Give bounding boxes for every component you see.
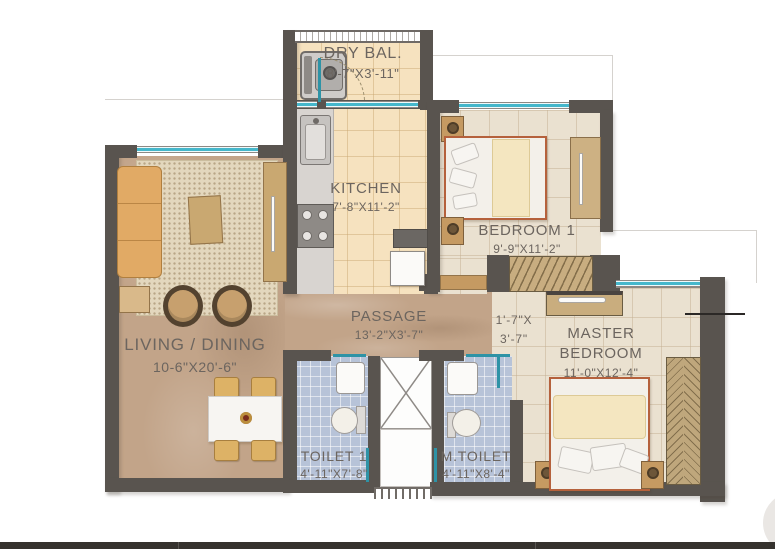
dresser <box>546 291 623 316</box>
dining-chair <box>251 440 276 461</box>
room-dim: 4'-11"X7'-8" <box>300 468 368 482</box>
floor-plan: DRY BAL. 8'-7"X3'-11" KITCHEN 7'-8"X11'-… <box>0 0 775 549</box>
bed-blanket <box>492 139 530 217</box>
room-dim: 4'-11"X8'-4" <box>441 468 512 482</box>
room-label-toilet1: TOILET 1 4'-11"X7'-8" <box>300 448 368 482</box>
room-name: KITCHEN <box>330 180 401 197</box>
wall-wardrobe-left-post <box>487 255 509 292</box>
side-table <box>119 286 150 313</box>
nightstand <box>441 217 464 245</box>
coffee-table <box>188 195 223 245</box>
wall-kitchen-bedroom1 <box>427 100 440 292</box>
room-name: TOILET 1 <box>300 448 368 464</box>
armchair <box>212 285 252 327</box>
toilet1-door-leaf-top <box>333 354 366 357</box>
burner <box>302 210 312 220</box>
wall-living-bottom <box>105 478 289 492</box>
dry-balcony-door-leaf <box>318 58 321 102</box>
progress-bar[interactable] <box>0 542 775 549</box>
entrance-lobby <box>380 429 432 487</box>
room-label-bedroom1: BEDROOM 1 9'-9"X11'-2" <box>478 222 575 257</box>
room-label-master-toilet: M.TOILET 4'-11"X8'-4" <box>441 448 512 482</box>
master-toilet-wc <box>452 409 481 437</box>
wardrobe-bedroom1 <box>570 137 601 219</box>
room-name-line2: BEDROOM <box>559 345 642 362</box>
wall-toilet1-left <box>283 350 297 492</box>
kitchen-sink <box>300 115 331 165</box>
wardrobe-chevron-right <box>684 358 700 484</box>
tv-unit <box>263 162 287 282</box>
nightstand-lamp <box>647 467 659 479</box>
burner <box>318 231 328 241</box>
room-label-master-bedroom: MASTER BEDROOM 11'-0"X12'-4" <box>559 325 642 380</box>
bedroom1-door-panel <box>440 275 487 290</box>
room-name: DRY BAL. <box>324 45 403 63</box>
room-dim: 10-6"X20'-6" <box>124 359 265 375</box>
burner <box>302 231 312 241</box>
sink-bowl <box>305 124 326 160</box>
room-dim: 8'-7"X3'-11" <box>324 67 403 82</box>
room-name: M.TOILET <box>441 448 512 464</box>
toilet1-wc <box>331 407 358 434</box>
room-dim: 7'-8"X11'-2" <box>330 201 401 215</box>
wall-wardrobe-right-post <box>593 255 602 292</box>
wall-master-right <box>700 277 725 502</box>
duct-shaft <box>380 357 432 429</box>
armchair <box>163 285 203 327</box>
pillow <box>452 192 478 210</box>
dresser-object <box>558 297 606 303</box>
room-label-mini-passage: 1'-7"X 3'-7" <box>496 314 533 347</box>
pillow <box>450 142 480 166</box>
nightstand-lamp <box>447 122 459 134</box>
boundary-line-east-v <box>756 230 757 283</box>
wall-master-toilet-top <box>419 350 464 361</box>
nightstand-lamp <box>447 223 459 235</box>
wall-living-top-left <box>105 145 137 158</box>
room-dim: 9'-9"X11'-2" <box>478 243 575 257</box>
fridge <box>390 251 425 286</box>
window-master-bedroom <box>616 280 702 288</box>
room-label-kitchen: KITCHEN 7'-8"X11'-2" <box>330 180 401 215</box>
window-bedroom1 <box>459 102 569 109</box>
kitchen-platform <box>393 229 428 248</box>
wall-shaft-left <box>368 356 380 490</box>
table-centerpiece <box>240 412 252 424</box>
entrance-threshold <box>374 487 432 499</box>
dining-chair <box>214 377 239 398</box>
progress-bar-divider <box>178 542 179 549</box>
room-name-line1: MASTER <box>559 325 642 342</box>
boundary-line-above-bedroom1 <box>433 55 613 56</box>
mini-passage-door-leaf <box>497 356 500 388</box>
room-label-living-dining: LIVING / DINING 10-6"X20'-6" <box>124 335 265 375</box>
progress-bar-divider <box>535 542 536 549</box>
master-toilet-sink <box>447 362 478 395</box>
bed-bedroom1 <box>444 136 547 220</box>
dining-table <box>208 396 282 442</box>
wall-bedroom1-right <box>600 110 613 232</box>
wall-master-toilet-right <box>510 400 523 490</box>
room-dim: 13'-2"X3'-7" <box>351 329 427 343</box>
wall-dry-balcony-right <box>420 30 433 110</box>
wardrobe-chevron-left <box>667 358 683 484</box>
toilet1-sink <box>336 362 365 394</box>
room-dim-line1: 1'-7"X <box>496 314 533 328</box>
window-living <box>137 146 258 153</box>
room-name: BEDROOM 1 <box>478 222 575 239</box>
wardrobe-hatched <box>509 256 593 292</box>
stove <box>297 204 334 248</box>
washer-control-panel <box>304 56 312 94</box>
boundary-line-bedroom1-right <box>612 55 613 100</box>
room-name: LIVING / DINING <box>124 335 265 355</box>
room-label-passage: PASSAGE 13'-2"X3'-7" <box>351 308 427 343</box>
wardrobe-door-handle <box>579 153 583 205</box>
sofa <box>117 166 162 278</box>
floating-button[interactable] <box>763 492 775 549</box>
louver-dry-balcony <box>295 30 420 43</box>
wardrobe-master <box>666 357 701 485</box>
bed-blanket <box>553 395 646 439</box>
pillow <box>448 167 477 189</box>
tv-screen <box>271 196 275 252</box>
nightstand <box>641 461 664 489</box>
wall-kitchen-corner-stub <box>424 283 438 294</box>
boundary-line-east-h <box>613 230 757 231</box>
room-name: PASSAGE <box>351 308 427 325</box>
room-dim-line2: 3'-7" <box>496 333 533 347</box>
window-kitchen-service <box>297 101 418 108</box>
dining-chair <box>251 377 276 398</box>
master-toilet-door-leaf-top <box>466 354 510 357</box>
boundary-line-top-left <box>105 99 283 100</box>
master-toilet-door-leaf <box>434 448 437 482</box>
sink-faucet <box>313 118 319 124</box>
shaft-cross-icon <box>381 358 431 428</box>
burner <box>318 210 328 220</box>
room-label-dry-balcony: DRY BAL. 8'-7"X3'-11" <box>324 45 403 82</box>
wall-bedroom1-top-left <box>427 100 459 113</box>
room-dim: 11'-0"X12'-4" <box>559 367 642 381</box>
dining-chair <box>214 440 239 461</box>
dimension-line <box>685 313 745 315</box>
bed-master <box>549 377 650 491</box>
